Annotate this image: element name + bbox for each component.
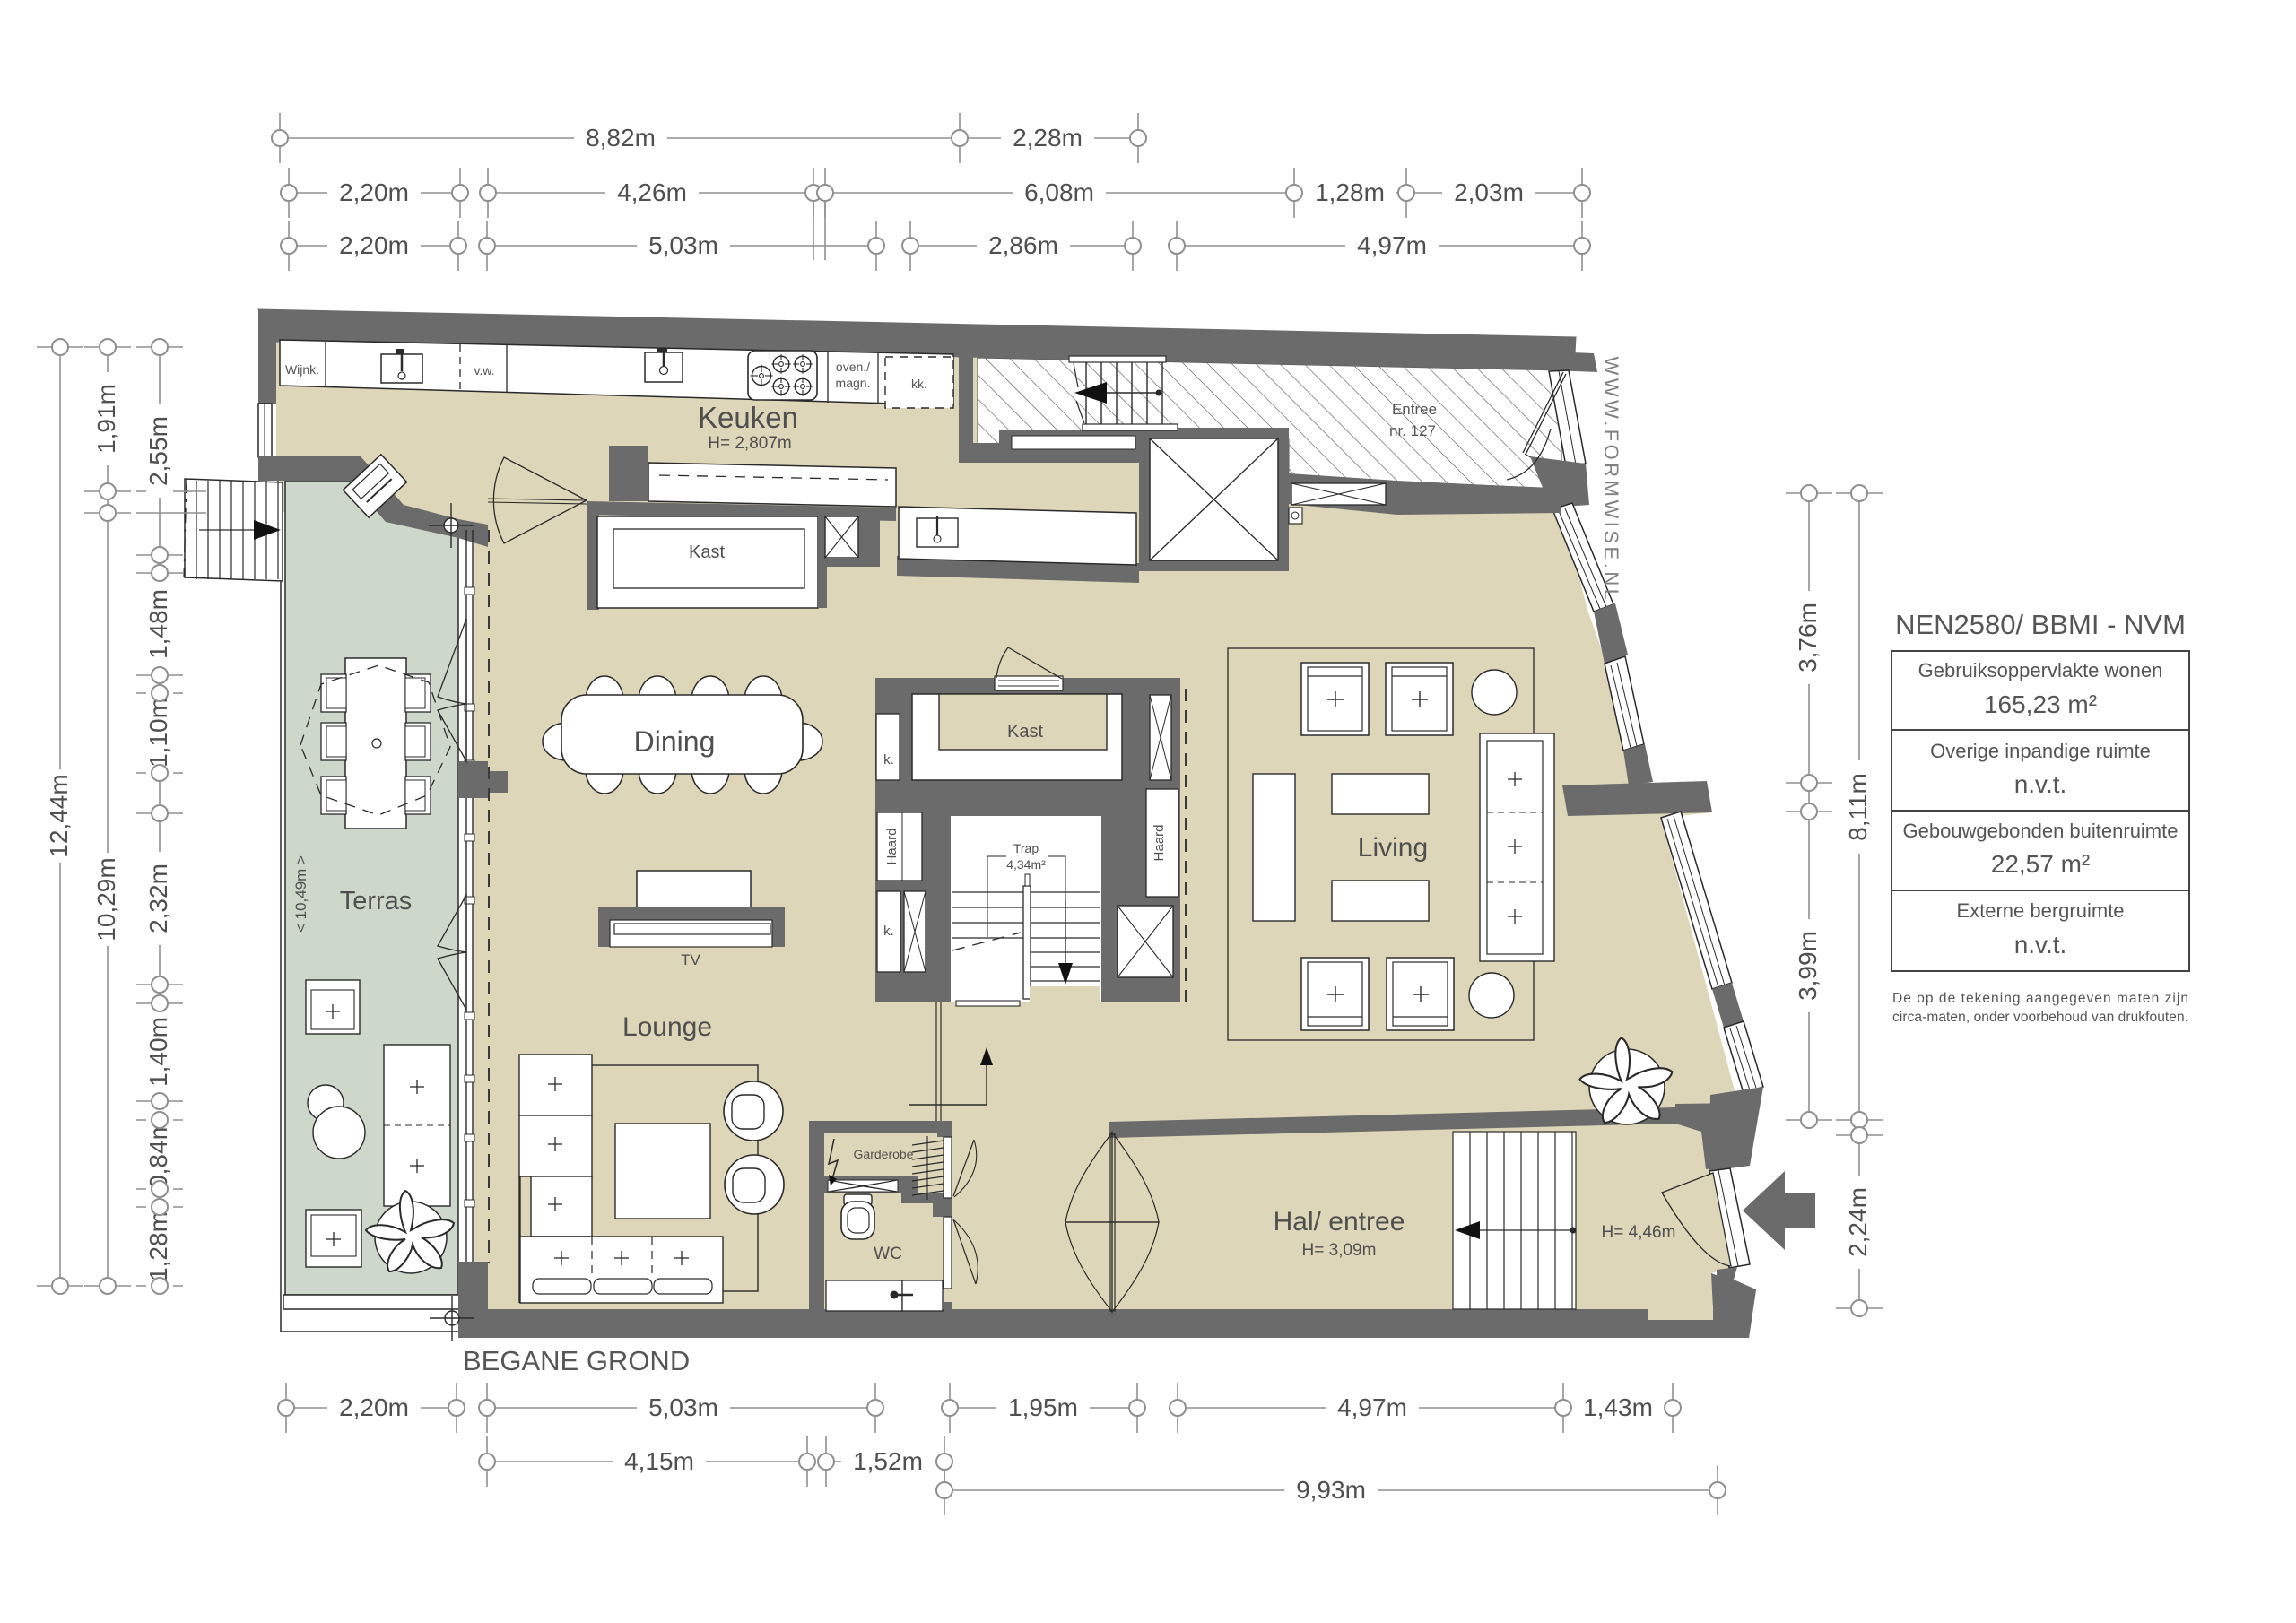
svg-text:< 10,49m >: < 10,49m > bbox=[292, 855, 309, 933]
svg-text:4,97m: 4,97m bbox=[1357, 231, 1427, 259]
svg-text:WC: WC bbox=[874, 1245, 902, 1263]
svg-text:5,03m: 5,03m bbox=[648, 231, 718, 259]
svg-text:n.v.t.: n.v.t. bbox=[2014, 770, 2067, 798]
svg-text:4,97m: 4,97m bbox=[1337, 1393, 1407, 1421]
svg-text:Externe bergruimte: Externe bergruimte bbox=[1956, 899, 2124, 922]
svg-text:Kast: Kast bbox=[689, 542, 725, 562]
svg-text:BEGANE GROND: BEGANE GROND bbox=[463, 1345, 690, 1376]
svg-text:1,43m: 1,43m bbox=[1583, 1393, 1653, 1421]
svg-text:NEN2580/ BBMI - NVM: NEN2580/ BBMI - NVM bbox=[1895, 609, 2186, 640]
svg-text:1,48m: 1,48m bbox=[144, 589, 172, 659]
svg-text:2,86m: 2,86m bbox=[988, 231, 1058, 259]
svg-text:nr. 127: nr. 127 bbox=[1389, 422, 1436, 439]
svg-text:oven./: oven./ bbox=[836, 360, 870, 374]
svg-text:1,91m: 1,91m bbox=[92, 384, 120, 454]
svg-text:Gebouwgebonden buitenruimte: Gebouwgebonden buitenruimte bbox=[1902, 820, 2178, 842]
svg-text:2,32m: 2,32m bbox=[144, 864, 172, 933]
svg-text:H= 4,46m: H= 4,46m bbox=[1602, 1223, 1676, 1242]
svg-text:1,28m: 1,28m bbox=[1315, 178, 1385, 206]
svg-text:1,28m: 1,28m bbox=[144, 1211, 172, 1281]
svg-text:2,20m: 2,20m bbox=[339, 231, 409, 259]
svg-text:Terras: Terras bbox=[340, 887, 413, 916]
svg-text:12,44m: 12,44m bbox=[45, 774, 73, 857]
svg-text:Hal/ entree: Hal/ entree bbox=[1274, 1207, 1405, 1237]
svg-text:2,03m: 2,03m bbox=[1454, 178, 1524, 206]
svg-text:k.: k. bbox=[883, 752, 894, 768]
svg-text:Entree: Entree bbox=[1392, 401, 1437, 418]
svg-text:3,99m: 3,99m bbox=[1794, 931, 1822, 1001]
svg-text:magn.: magn. bbox=[836, 376, 871, 390]
svg-text:Haard: Haard bbox=[884, 829, 900, 865]
svg-text:2,20m: 2,20m bbox=[339, 1393, 409, 1421]
svg-text:De op de tekening aangegeven m: De op de tekening aangegeven maten zijn bbox=[1892, 991, 2188, 1006]
svg-text:Living: Living bbox=[1358, 833, 1428, 863]
svg-text:Kast: Kast bbox=[1007, 722, 1043, 742]
svg-text:1,52m: 1,52m bbox=[853, 1447, 923, 1475]
svg-text:8,82m: 8,82m bbox=[586, 124, 656, 152]
svg-text:Gebruiksoppervlakte wonen: Gebruiksoppervlakte wonen bbox=[1918, 659, 2163, 681]
svg-text:n.v.t.: n.v.t. bbox=[2014, 931, 2067, 959]
svg-text:Keuken: Keuken bbox=[698, 401, 798, 434]
svg-text:H= 2,807m: H= 2,807m bbox=[708, 434, 791, 453]
svg-text:v.w.: v.w. bbox=[474, 363, 494, 378]
svg-text:0,84m: 0,84m bbox=[144, 1119, 172, 1189]
svg-text:Dining: Dining bbox=[634, 725, 716, 758]
svg-text:Trap: Trap bbox=[1013, 841, 1039, 855]
svg-text:2,24m: 2,24m bbox=[1844, 1187, 1872, 1257]
svg-text:Lounge: Lounge bbox=[622, 1012, 712, 1042]
svg-text:kk.: kk. bbox=[911, 377, 927, 391]
svg-text:Wijnk.: Wijnk. bbox=[285, 362, 319, 377]
svg-text:6,08m: 6,08m bbox=[1024, 178, 1094, 206]
svg-text:Garderobe: Garderobe bbox=[854, 1147, 914, 1161]
svg-text:Overige inpandige ruimte: Overige inpandige ruimte bbox=[1930, 740, 2151, 762]
svg-text:Haard: Haard bbox=[1152, 825, 1167, 862]
svg-text:1,95m: 1,95m bbox=[1008, 1393, 1078, 1421]
svg-text:22,57 m²: 22,57 m² bbox=[1991, 850, 2091, 878]
svg-text:1,40m: 1,40m bbox=[144, 1017, 172, 1087]
svg-text:k.: k. bbox=[883, 924, 894, 939]
svg-text:4,26m: 4,26m bbox=[617, 178, 687, 206]
svg-text:4,15m: 4,15m bbox=[624, 1447, 694, 1475]
svg-text:2,55m: 2,55m bbox=[144, 416, 172, 486]
svg-text:TV: TV bbox=[681, 951, 700, 968]
svg-text:H= 3,09m: H= 3,09m bbox=[1302, 1241, 1377, 1260]
svg-text:8,11m: 8,11m bbox=[1844, 773, 1872, 841]
svg-text:5,03m: 5,03m bbox=[648, 1393, 718, 1421]
svg-text:3,76m: 3,76m bbox=[1794, 603, 1822, 673]
svg-text:circa-maten, onder voorbehoud: circa-maten, onder voorbehoud van drukfo… bbox=[1892, 1010, 2188, 1025]
svg-text:165,23 m²: 165,23 m² bbox=[1984, 690, 2097, 718]
svg-text:2,28m: 2,28m bbox=[1013, 124, 1083, 152]
svg-text:9,93m: 9,93m bbox=[1296, 1476, 1366, 1504]
svg-text:WWW.FORMWISE.NL: WWW.FORMWISE.NL bbox=[1600, 357, 1622, 603]
svg-text:1,10m: 1,10m bbox=[144, 698, 172, 768]
svg-text:10,29m: 10,29m bbox=[92, 857, 120, 941]
svg-text:2,20m: 2,20m bbox=[339, 178, 409, 206]
svg-text:4,34m²: 4,34m² bbox=[1006, 857, 1046, 872]
